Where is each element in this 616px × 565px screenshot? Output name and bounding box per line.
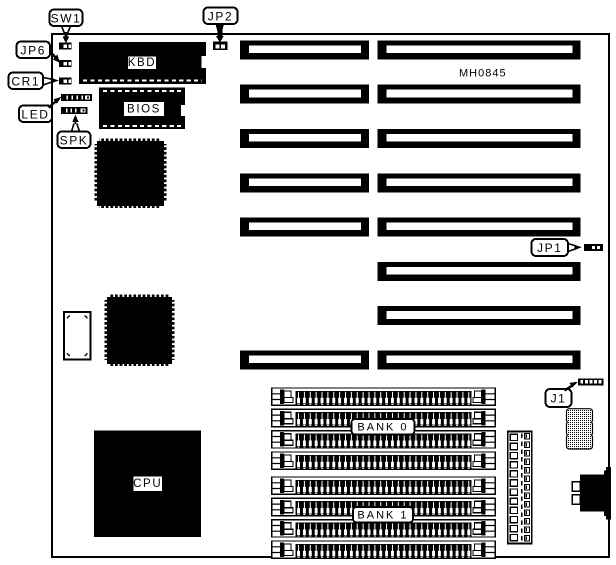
- svg-text:CR1: CR1: [11, 74, 40, 88]
- svg-text:JP2: JP2: [208, 9, 233, 23]
- svg-text:BANK 1: BANK 1: [357, 509, 408, 521]
- svg-text:BIOS: BIOS: [127, 103, 161, 115]
- svg-text:CPU: CPU: [133, 478, 162, 490]
- svg-text:J1: J1: [551, 392, 567, 406]
- svg-text:BANK 0: BANK 0: [357, 421, 408, 433]
- svg-text:JP1: JP1: [537, 241, 562, 255]
- svg-text:LED: LED: [21, 107, 49, 121]
- svg-text:MH0845: MH0845: [459, 68, 507, 80]
- svg-text:KBD: KBD: [128, 57, 156, 69]
- svg-text:JP6: JP6: [21, 43, 46, 57]
- svg-text:SW1: SW1: [51, 11, 82, 25]
- svg-text:SPK: SPK: [60, 133, 89, 147]
